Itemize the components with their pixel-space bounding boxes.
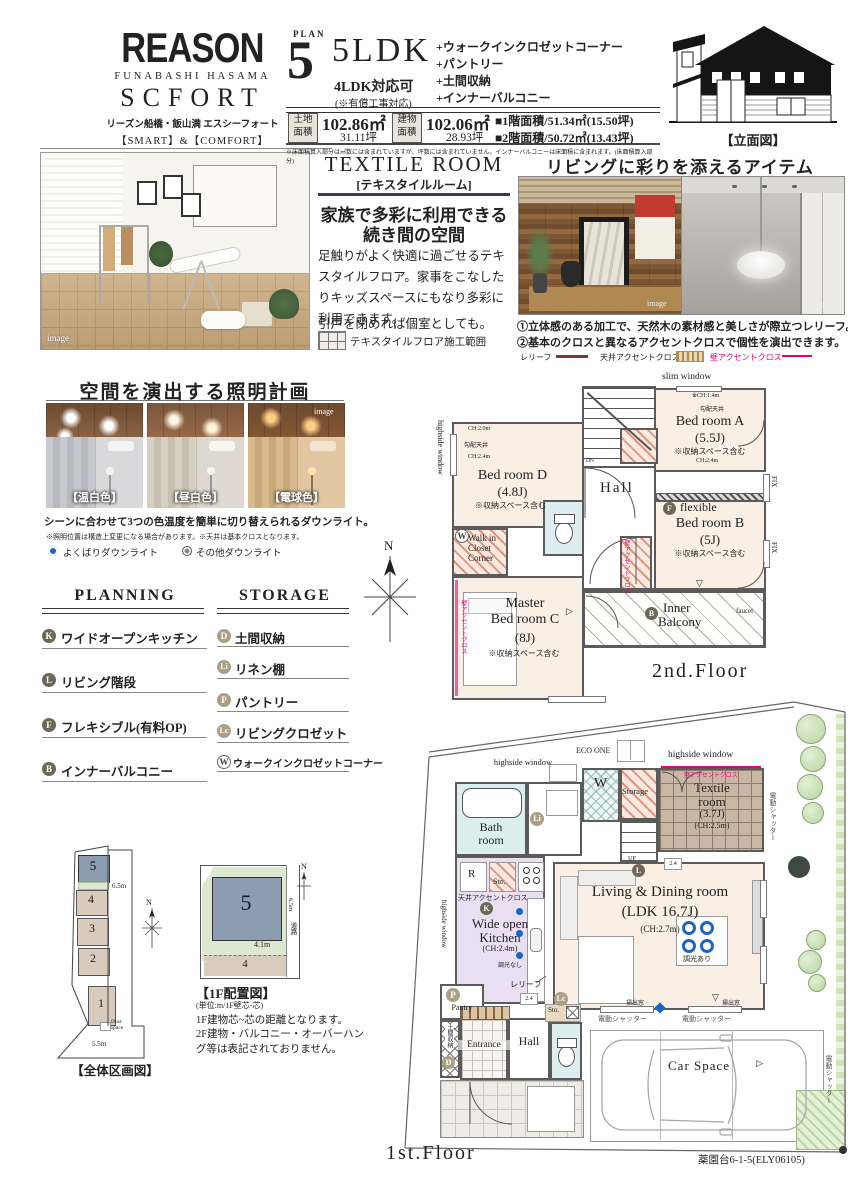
image-tag: image: [810, 299, 830, 308]
site-lot-2-number: 2: [78, 951, 108, 966]
floor2-area: ■2階面積/50.72㎡(13.43坪): [495, 129, 634, 146]
items-legend-wall: 壁アクセントクロス: [710, 352, 782, 363]
storage-key-icon: Lc: [217, 724, 231, 738]
lighting-caption: シーンに合わせて3つの色温度を簡単に切り替えられるダウンライト。: [44, 514, 374, 529]
f2-ch20-label: CH:2.0m: [468, 426, 490, 432]
site-lot-1-number: 1: [88, 996, 114, 1011]
f1-hall: [508, 1018, 550, 1080]
items-caption-2: ②基本のクロスと異なるアクセントクロスで個性を演出できます。: [517, 334, 845, 350]
site-bottom-width: 5.5m: [92, 1040, 106, 1048]
f1-highside-label-left: highside window: [488, 758, 558, 767]
f1-wic-letter: W: [594, 776, 607, 792]
planning-row-line: [42, 648, 207, 649]
living-closet-icon: Lc: [554, 992, 568, 1006]
f2-closet-accent-label: 壁アクセントクロス: [622, 540, 631, 594]
textile-rule: [318, 193, 510, 196]
plan-feature: +インナーバルコニー: [436, 89, 550, 106]
f1-ldk-size: (LDK 16.7J): [585, 904, 735, 921]
plan-type: 5LDK: [332, 32, 431, 70]
toilet-bowl-icon: [558, 1046, 575, 1067]
lighting-label: 【温白色】: [46, 489, 143, 505]
stove-burner: [523, 877, 530, 884]
garden-tree: [800, 746, 826, 772]
porch-slab: [527, 1086, 575, 1132]
site-lot-3-number: 3: [77, 921, 107, 936]
hanging-cloth: [103, 227, 115, 271]
elevation-figure: 【立面図】: [665, 20, 841, 128]
lighting-photo-daylight: 【昼白色】: [147, 403, 244, 508]
ldk-window-gap-right: [760, 880, 767, 918]
f2-master-name-2: Bed room C: [470, 612, 580, 628]
elevation-drawing: [665, 20, 841, 128]
f2-slope-label: 勾配天井: [700, 404, 724, 413]
wall-frames: [181, 193, 201, 217]
kitchen-downlight: [516, 930, 523, 937]
planning-row-line: [42, 781, 207, 782]
ac-unit: [209, 441, 235, 451]
plc-unit: (単位:m/1F壁芯-芯): [196, 1000, 263, 1011]
f1-sto-label: Sto.: [493, 877, 506, 886]
f1-doma-label: 土間収納: [445, 1024, 454, 1048]
land-area-label: 土地 面積: [288, 113, 318, 143]
plc-note-1: 1F建物芯~芯の距離となります。: [196, 1012, 348, 1027]
floor1-area: ■1階面積/51.34㎡(15.50坪): [495, 112, 634, 129]
ceiling-spot: [732, 185, 737, 188]
ceiling-spot: [792, 185, 797, 188]
planning-item: リビング階段: [61, 672, 136, 691]
garden-dark-tree: [788, 856, 810, 878]
f2-bedroom-a-note: ※収納スペース含む: [656, 446, 764, 457]
f1-bath-label-2: room: [458, 833, 524, 848]
storage-key-icon: W: [217, 755, 231, 769]
storage-item: 土間収納: [235, 628, 285, 647]
planning-item: フレキシブル(有料OP): [61, 717, 187, 736]
f2-dn-label: DN: [586, 458, 594, 464]
f1-hall-label: Hall: [508, 1034, 550, 1049]
planning-row-line: [42, 737, 207, 738]
items-legend-relief: レリーフ: [520, 352, 552, 363]
ldk-window-gap-right: [760, 946, 767, 984]
ldk-window-marker: ▽: [712, 992, 719, 1003]
stove-burner: [523, 867, 530, 874]
image-tag: image: [47, 333, 69, 343]
ac-unit: [310, 441, 336, 451]
pendant-lamp: [737, 251, 785, 279]
linen-shelf-icon: Li: [530, 812, 544, 826]
f1-up-label: UP: [628, 856, 636, 862]
f2-wall-accent-strip: [455, 580, 458, 696]
plc-compass-n: N: [301, 862, 307, 871]
planning-underline: [42, 608, 204, 614]
plan-alt: 4LDK対応可: [334, 76, 413, 96]
f2-balcony-label-2: Balcony: [658, 614, 701, 630]
picture-frame-inner: [584, 222, 624, 286]
planning-title: PLANNING: [50, 587, 200, 605]
plc-lot-4-number: 4: [204, 958, 286, 970]
main-compass-n: N: [384, 538, 393, 554]
textile-room-photo: image: [40, 152, 310, 350]
dust-space-box: [100, 1022, 111, 1031]
plan-alt-note: (※有償工事対応): [335, 95, 412, 110]
f1-textile-accent-label: 壁アクセントクロス: [684, 770, 738, 779]
plc-note-2: 2F建物・バルコニー・オーバーハング等は表記されておりません。: [196, 1027, 374, 1057]
lighting-label: 【電球色】: [248, 489, 345, 505]
bldg-area-label: 建物 面積: [392, 113, 422, 143]
towel: [201, 311, 245, 329]
bldg-label-1: 建物: [397, 115, 416, 125]
f1-dim-no-label: 調光なし: [498, 960, 522, 969]
storage-key-icon: Li: [217, 660, 231, 674]
ac-unit: [108, 441, 134, 451]
site-lot-5-number: 5: [78, 858, 108, 874]
site-caption: 【全体区画図】: [60, 1060, 170, 1079]
f1-carspace-label: Car Space: [668, 1058, 730, 1074]
items-photo-pendant: image: [681, 176, 845, 315]
planning-key-icon: B: [42, 762, 56, 776]
bathtub-icon: [462, 788, 522, 818]
f2-wall-accent-label: 壁アクセントクロス: [459, 600, 468, 654]
image-tag: image: [647, 299, 667, 308]
textile-title: TEXTILE ROOM: [316, 152, 512, 177]
storage-row-line: [217, 742, 349, 743]
storage-item: パントリー: [235, 692, 298, 711]
garden-tree: [802, 802, 824, 824]
plant-right: [269, 289, 299, 319]
f1-carspace: [590, 1030, 824, 1142]
planning-row-line: [42, 692, 207, 693]
land-label-2: 面積: [293, 128, 312, 138]
bldg-label-2: 面積: [397, 128, 416, 138]
f1-ldk-name: Living & Dining room: [560, 884, 760, 901]
lighting-label: 【昼白色】: [147, 489, 244, 505]
f1-highside-window-side: highside window: [440, 900, 448, 948]
plant: [149, 241, 173, 267]
f2-ch24-label: CH:2.4m: [696, 458, 718, 464]
f1-shutter-label-side: 電動シャッター: [824, 1055, 834, 1104]
vase: [561, 261, 581, 287]
f1-sweep-window-label: 掃出窓: [626, 998, 644, 1007]
dim-box-24: 2.4: [664, 858, 682, 870]
downlight: [98, 415, 120, 437]
downlight: [260, 407, 282, 429]
storage-row-line: [217, 711, 349, 712]
plc-dim-label: 4.1m: [254, 940, 270, 949]
f1-dim-yes-label: 調光あり: [672, 954, 722, 964]
textile-heading-2: 続き間の空間: [314, 221, 514, 246]
storage-key-icon: D: [217, 629, 231, 643]
wall-accent-swatch: [782, 355, 812, 357]
toilet-bowl-icon: [555, 522, 573, 544]
walkin-closet-icon: W: [455, 529, 469, 543]
planning-key-icon: L: [42, 673, 56, 687]
stove-burner: [533, 877, 540, 884]
f1-storage-label: Storage: [622, 786, 648, 796]
f1-textile-accent-line: [661, 766, 761, 768]
parking-divider: [660, 1030, 661, 1140]
kitchen-icon: K: [480, 902, 493, 915]
f2-hall-label: Hall: [600, 480, 634, 497]
ceiling-accent-swatch: [676, 351, 704, 362]
f2-wic-label-1: Walk in: [468, 533, 496, 543]
items-title: リビングに彩りを添えるアイテム: [516, 153, 844, 178]
wall-frames: [163, 175, 183, 199]
downlight-legend-1: よくばりダウンライト: [63, 545, 158, 559]
plan-feature: +パントリー: [436, 55, 503, 72]
f2-window-marker: ▽: [696, 578, 703, 589]
downlight: [201, 417, 223, 439]
pendant-cord: [760, 177, 762, 255]
photo-window-right: [193, 165, 277, 227]
living-stairs-icon: L: [632, 864, 645, 877]
f1-entrance-label: Entrance: [458, 1040, 510, 1050]
parking-divider: [732, 1030, 733, 1140]
items-caption-1: ①立体感のある加工で、天然木の素材感と美しさが際立つレリーフ。: [517, 318, 848, 334]
flexible-icon: F: [663, 502, 676, 515]
planning-item: ワイドオープンキッチン: [61, 628, 198, 647]
textile-subtitle: [テキスタイルルーム]: [316, 176, 512, 193]
site-green-strip: [78, 882, 109, 890]
plan-feature: +土間収納: [436, 72, 491, 89]
f1-eco-one-label: ECO ONE: [576, 746, 610, 755]
washer-icon: [546, 790, 578, 816]
f2-slim-window-label: slim window: [662, 372, 711, 382]
plc-road-width: 6.5m: [287, 898, 294, 911]
plant-vase: [533, 273, 547, 293]
floor-lamp: [308, 467, 316, 475]
f2-master-window-gap: [548, 696, 606, 703]
f2-closet-a: [620, 428, 658, 464]
storage-row-line: [217, 771, 349, 772]
site-compass-n: N: [146, 898, 152, 907]
eco-one-divider: [630, 740, 631, 760]
f2-flexible-label: flexible: [680, 500, 717, 515]
garden-tree: [797, 774, 823, 800]
dim-box-value: 2.4: [525, 996, 533, 1002]
f2-faucet-label: faucet: [736, 607, 753, 615]
lighting-note: ※照明位置は構造上変更になる場合があります。※天井は基本クロスとなります。: [46, 532, 303, 542]
ldk-downlight: [700, 921, 714, 935]
wall-frames: [137, 181, 157, 205]
garden-shrub: [798, 950, 822, 974]
f1-shutter-label: 電動シャッター: [682, 1014, 731, 1024]
eco-one-unit: [617, 740, 645, 762]
f1-ceiling-accent-label: 天井アクセントクロス: [458, 893, 528, 903]
f1-floor-name: 1st.Floor: [386, 1142, 476, 1165]
dust-space-label-2: space: [111, 1025, 123, 1031]
f2-slope-label: 勾配天井: [464, 440, 488, 449]
brand-title: REASON: [80, 26, 306, 70]
items-photo-wood: image: [518, 176, 682, 315]
flyer-page: REASON FUNABASHI HASAMA SCFORT リーズン船橋・飯山…: [0, 0, 848, 1200]
f2-master-note: ※収納スペース含む: [468, 648, 580, 659]
f2-highside-window-label: highside window: [436, 420, 445, 475]
items-legend-ceiling: 天井アクセントクロス: [600, 352, 680, 363]
f1-textile-size: (3.7J): [662, 808, 762, 820]
f1-shutter-label-right: 電動シャッター: [768, 792, 778, 841]
ldk-window-gap: [600, 1006, 654, 1013]
downlight-legend-1-icon: [48, 546, 58, 556]
f2-bedroom-d-name: Bed room D: [455, 468, 570, 484]
f1-sto-hatch: [566, 1006, 579, 1019]
planning-key-icon: K: [42, 629, 56, 643]
planning-item: インナーバルコニー: [61, 761, 173, 780]
textile-legend-icon: [318, 331, 346, 350]
garden-grass: [796, 1090, 846, 1150]
storage-item: ウォークインクロゼットコーナー: [233, 755, 383, 770]
plc-road-label: 道路: [287, 922, 297, 935]
stove-icon: [518, 862, 544, 892]
f2-bedroom-b-size: (5J): [660, 532, 760, 548]
f1-r-label: R: [468, 868, 475, 880]
f2-bedroom-b-name: Bed room B: [660, 516, 760, 532]
f2-floor-name: 2nd.Floor: [652, 660, 748, 683]
plc-road: [286, 865, 299, 977]
f2-bedroom-a-name: Bed room A: [660, 414, 760, 430]
land-tsubo: 31.11坪: [340, 129, 377, 145]
f2-wic-label-2: Closet: [468, 543, 491, 553]
toilet-tank-icon: [554, 514, 575, 524]
doma-icon: D: [442, 1056, 455, 1069]
f2-fix-label: FIX: [770, 476, 778, 487]
downlight: [60, 407, 82, 429]
kitchen-downlight: [516, 952, 523, 959]
inner-balcony-icon: B: [645, 607, 658, 620]
garden-shrub: [806, 930, 826, 950]
f1-highside-label-right: highside window: [668, 750, 733, 760]
f1-sto-box-label: Sto.: [548, 1006, 559, 1014]
relief-line-swatch: [556, 355, 588, 358]
ceiling-spot: [762, 185, 767, 188]
f1-sweep-window-label: 掃出窓: [722, 998, 740, 1007]
planning-key-icon: F: [42, 718, 56, 732]
storage-key-icon: P: [217, 693, 231, 707]
ldk-downlight: [700, 939, 714, 953]
f1-pantry-label: Pantry: [440, 1003, 484, 1012]
textile-body-2: 引戸を閉めれば個室としても。: [318, 313, 492, 332]
f2-fix-window-gap: [763, 540, 770, 568]
plan-feature: +ウォークインクロゼットコーナー: [436, 38, 623, 55]
f1-kitchen-ch: (CH:2.4m): [455, 944, 545, 953]
f1-stairs: [620, 820, 658, 862]
footer-code: 薬園台6-1-5(ELY06105): [698, 1152, 805, 1167]
f1-relief-label: レリーフ: [510, 979, 542, 990]
site-road-width: 6.5m: [112, 882, 126, 890]
downlight: [300, 415, 322, 437]
ldk-window-marker: ▷: [756, 1058, 763, 1069]
lighting-photo-bulb: image 【電球色】: [248, 403, 345, 508]
lighting-photo-warm-white: 【温白色】: [46, 403, 143, 508]
f2-window-marker: ▷: [566, 606, 573, 617]
garden-tree: [796, 714, 826, 744]
f2-bedroom-a-size: (5.5J): [660, 430, 760, 446]
plan-number: 5: [287, 30, 314, 90]
elevation-caption: 【立面図】: [665, 130, 841, 149]
ldk-downlight: [682, 921, 696, 935]
site-lot-4-number: 4: [76, 892, 106, 907]
f2-master-name-1: Master: [470, 596, 580, 612]
f1-shutter-label: 電動シャッター: [598, 1014, 647, 1024]
ldk-downlight: [682, 939, 696, 953]
downlight-legend-2: その他ダウンライト: [196, 545, 282, 559]
downlight-legend-2-icon: [182, 546, 192, 556]
dining-table-icon: [578, 936, 634, 1004]
downlight: [163, 409, 185, 431]
f2-bedroom-b-note: ※収納スペース含む: [656, 548, 764, 559]
lighting-title: 空間を演出する照明計画: [44, 377, 346, 404]
storage-row-line: [217, 678, 349, 679]
poster: [635, 195, 675, 259]
storage-item: リビングクロゼット: [235, 723, 347, 742]
image-tag: image: [314, 407, 334, 416]
dim-box-24: 2.4: [520, 993, 538, 1005]
garden-strip: [836, 714, 845, 1150]
hanging-cloth: [121, 227, 133, 265]
land-label-1: 土地: [293, 115, 312, 125]
f2-fix-window-gap: [763, 474, 770, 502]
wood-ceiling: [147, 403, 244, 437]
f2-bedroom-d-size: (4.8J): [455, 484, 570, 500]
f2-wic-label-3: Corner: [468, 553, 493, 563]
f2-bedroom-d-note: ※収納スペース含む: [453, 500, 568, 511]
floor-lamp: [106, 467, 114, 475]
plc-building-5-number: 5: [212, 890, 280, 916]
pantry-icon: P: [446, 988, 460, 1002]
f1-textile-ch: (CH:2.5m): [662, 821, 762, 830]
textile-legend-label: テキスタイルフロア施工範囲: [350, 334, 486, 349]
storage-underline: [217, 608, 349, 614]
f2-ch14-label: ※CH:1.4m: [692, 392, 719, 399]
floor-lamp: [207, 467, 215, 475]
bldg-tsubo: 28.93坪: [446, 129, 483, 145]
f2-fix-label: FIX: [770, 542, 778, 553]
stove-burner: [533, 867, 540, 874]
f2-ch24-label: CH:2.4m: [468, 454, 490, 460]
toilet-tank-icon: [557, 1038, 577, 1048]
ldk-window-gap: [688, 1006, 742, 1013]
storage-title: STORAGE: [225, 587, 345, 605]
garden-shrub: [808, 974, 826, 992]
f2-master-size: (8J): [470, 630, 580, 646]
storage-item: リネン棚: [235, 659, 285, 678]
kitchen-downlight: [516, 908, 523, 915]
closet-door-line: [822, 193, 823, 314]
dim-box-value: 2.4: [669, 861, 677, 867]
